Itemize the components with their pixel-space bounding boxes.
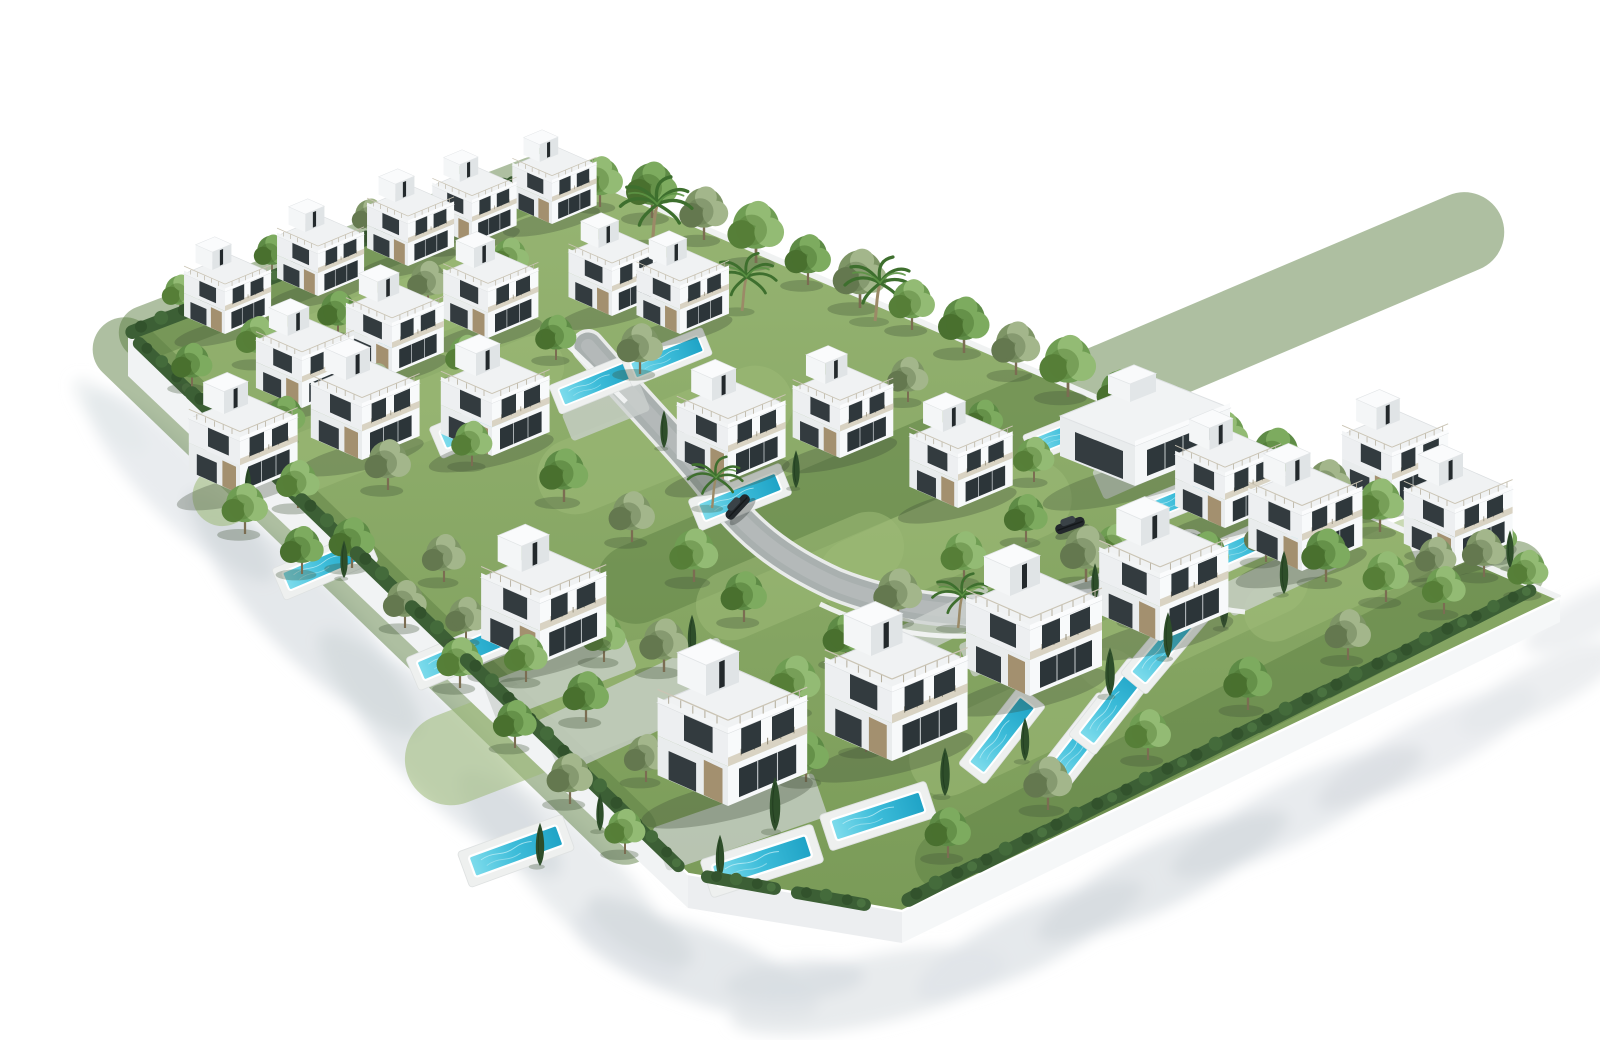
villa-development-scene [40, 16, 1600, 1040]
architectural-render: Aerial 3D architectural rendering of a g… [40, 16, 1600, 1040]
